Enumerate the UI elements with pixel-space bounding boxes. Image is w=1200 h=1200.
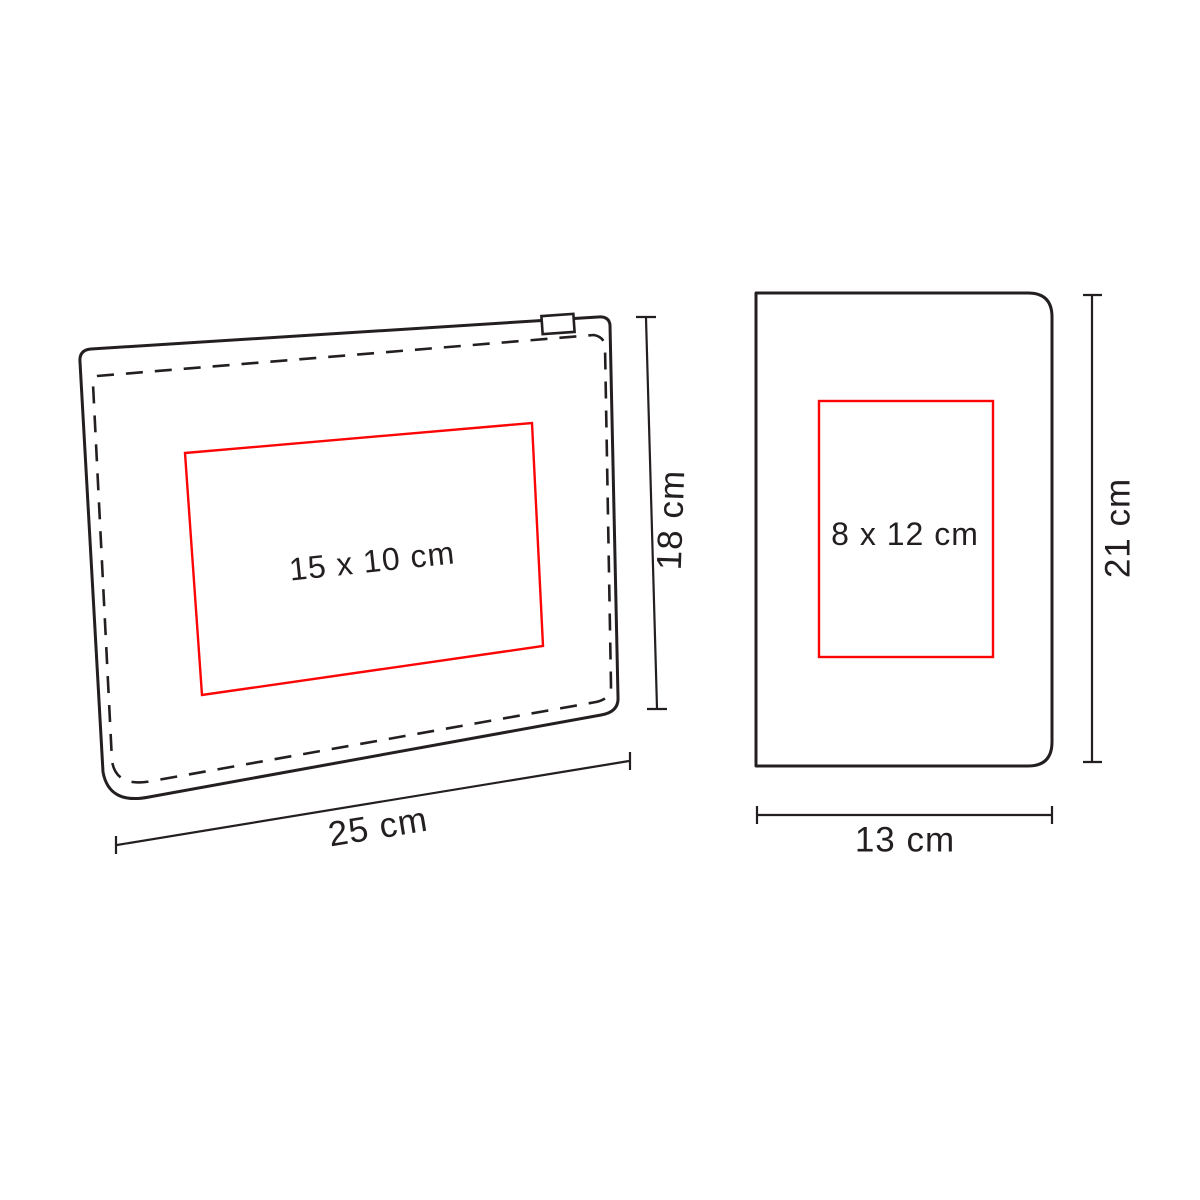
pouch-height-dimension: 18 cm xyxy=(636,317,692,709)
notebook-figure: 8 x 12 cm 21 cm 13 cm xyxy=(756,293,1138,860)
pouch-print-area-label: 15 x 10 cm xyxy=(287,534,456,587)
pouch-height-label: 18 cm xyxy=(650,469,692,571)
notebook-height-label: 21 cm xyxy=(1099,478,1138,578)
notebook-width-label: 13 cm xyxy=(855,821,955,860)
pouch-figure: 15 x 10 cm 18 cm 25 cm xyxy=(80,314,692,854)
notebook-print-area-label: 8 x 12 cm xyxy=(831,516,979,552)
notebook-width-dimension: 13 cm xyxy=(757,806,1052,860)
pouch-width-dimension: 25 cm xyxy=(116,752,630,854)
diagram-svg: 15 x 10 cm 18 cm 25 cm 8 x xyxy=(0,0,1200,1200)
product-dimension-diagram: 15 x 10 cm 18 cm 25 cm 8 x xyxy=(0,0,1200,1200)
pouch-zipper-slider-icon xyxy=(541,314,574,334)
notebook-height-dimension: 21 cm xyxy=(1083,295,1138,762)
